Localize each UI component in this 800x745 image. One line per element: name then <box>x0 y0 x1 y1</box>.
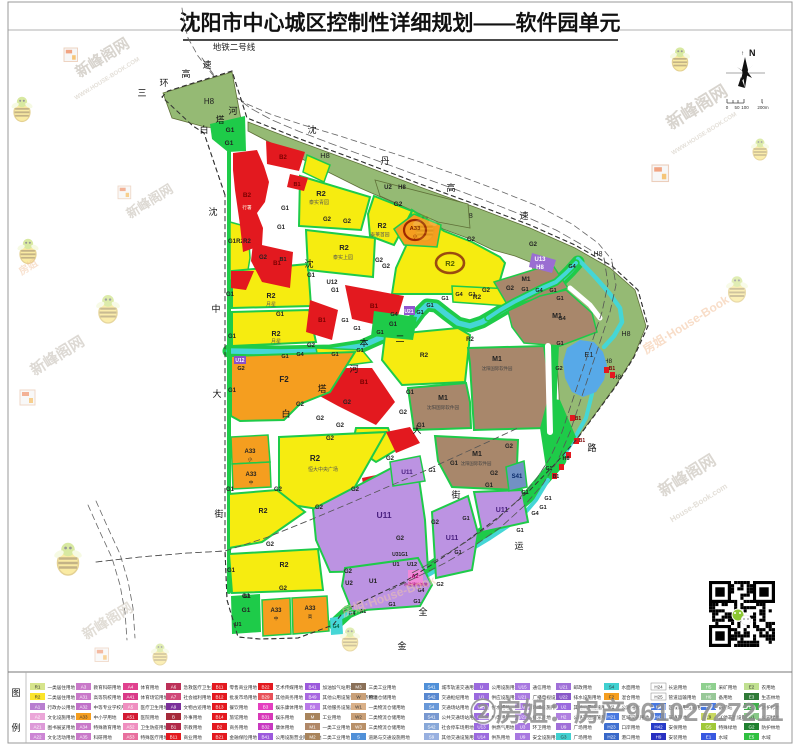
svg-text:U11: U11 <box>401 469 413 476</box>
svg-text:R2: R2 <box>243 239 251 245</box>
svg-text:A2: A2 <box>35 715 41 720</box>
svg-text:二类工业用地: 二类工业用地 <box>323 734 351 741</box>
svg-text:S41: S41 <box>512 474 523 480</box>
svg-text:G2: G2 <box>344 569 353 575</box>
svg-text:50: 50 <box>734 105 740 110</box>
svg-text:G1: G1 <box>441 296 448 302</box>
svg-text:100: 100 <box>741 105 749 110</box>
svg-text:E1: E1 <box>584 350 593 359</box>
svg-text:B2: B2 <box>279 155 287 161</box>
svg-text:B14: B14 <box>215 715 224 720</box>
svg-text:A4: A4 <box>128 685 134 690</box>
svg-text:G2: G2 <box>296 402 305 408</box>
svg-text:旅馆用地: 旅馆用地 <box>230 714 249 721</box>
svg-text:A1: A1 <box>35 705 41 710</box>
svg-text:W2: W2 <box>355 715 362 720</box>
svg-text:G1: G1 <box>546 466 553 472</box>
svg-text:G1: G1 <box>225 140 234 147</box>
svg-text:G1: G1 <box>516 528 523 534</box>
svg-text:A21: A21 <box>33 725 42 730</box>
svg-text:B49: B49 <box>308 695 317 700</box>
svg-text:S42: S42 <box>427 695 436 700</box>
svg-text:S42: S42 <box>427 725 436 730</box>
svg-text:R1: R1 <box>35 685 41 690</box>
svg-text:R2: R2 <box>466 337 474 343</box>
svg-text:U: U <box>480 685 483 690</box>
svg-text:B1: B1 <box>318 318 326 324</box>
svg-text:G2: G2 <box>351 487 360 493</box>
svg-text:体育用地: 体育用地 <box>141 684 160 691</box>
svg-text:文化活动用地: 文化活动用地 <box>48 734 76 741</box>
svg-text:R2: R2 <box>35 695 41 700</box>
svg-text:白: 白 <box>281 408 290 419</box>
svg-text:A7: A7 <box>171 695 177 700</box>
svg-text:M1: M1 <box>438 395 448 402</box>
svg-text:U1: U1 <box>369 578 378 585</box>
svg-text:G1: G1 <box>226 487 235 493</box>
svg-text:中: 中 <box>274 615 279 622</box>
svg-text:G2: G2 <box>259 255 268 261</box>
svg-text:G1: G1 <box>376 330 383 336</box>
svg-text:沈: 沈 <box>307 124 316 135</box>
svg-text:G1: G1 <box>428 468 435 474</box>
svg-text:G1: G1 <box>417 423 426 429</box>
svg-text:G2: G2 <box>326 436 335 442</box>
svg-text:其他商务用地: 其他商务用地 <box>276 694 304 701</box>
svg-text:恒大中央广场: 恒大中央广场 <box>308 466 338 473</box>
svg-text:卫生防疫用地: 卫生防疫用地 <box>141 724 169 731</box>
svg-text:特殊医疗用地: 特殊医疗用地 <box>141 734 169 741</box>
svg-text:H8: H8 <box>398 185 406 191</box>
svg-text:G2: G2 <box>506 286 515 292</box>
svg-text:水面用地: 水面用地 <box>622 684 641 691</box>
svg-text:S41: S41 <box>427 715 436 720</box>
svg-text:A5: A5 <box>128 705 134 710</box>
svg-text:G2: G2 <box>323 217 332 223</box>
svg-text:A3: A3 <box>81 685 87 690</box>
svg-text:G2: G2 <box>396 536 405 542</box>
svg-text:B21: B21 <box>215 735 224 740</box>
svg-text:大: 大 <box>212 388 221 399</box>
svg-text:E1: E1 <box>706 735 712 740</box>
svg-text:R2: R2 <box>267 293 276 300</box>
svg-text:泰实青园: 泰实青园 <box>309 199 329 206</box>
svg-text:G1: G1 <box>556 341 563 347</box>
svg-text:交通场站用地: 交通场站用地 <box>442 704 470 711</box>
svg-text:G1: G1 <box>454 550 461 556</box>
svg-text:G2: G2 <box>316 416 325 422</box>
svg-text:H8: H8 <box>622 331 631 338</box>
svg-text:沈阳市中心城区控制性详细规划——软件园单元: 沈阳市中心城区控制性详细规划——软件园单元 <box>180 11 621 35</box>
svg-text:U21: U21 <box>404 309 413 315</box>
svg-text:G1: G1 <box>544 496 551 502</box>
svg-text:港口用地: 港口用地 <box>622 734 641 741</box>
svg-text:长途用地: 长途用地 <box>669 684 688 691</box>
svg-text:S9: S9 <box>429 735 435 740</box>
svg-text:G1: G1 <box>331 352 338 358</box>
svg-text:M1: M1 <box>521 276 530 283</box>
svg-text:G1: G1 <box>485 483 494 489</box>
svg-text:科研用地: 科研用地 <box>94 734 113 741</box>
svg-text:R2: R2 <box>420 352 429 359</box>
svg-text:G3: G3 <box>560 735 567 740</box>
svg-text:U12: U12 <box>407 562 417 568</box>
svg-text:H5: H5 <box>706 685 712 690</box>
svg-text:A6: A6 <box>171 685 177 690</box>
svg-text:三类物流仓储用地: 三类物流仓储用地 <box>369 724 406 731</box>
svg-text:H8: H8 <box>594 251 603 258</box>
svg-text:B13: B13 <box>215 705 224 710</box>
svg-text:R2: R2 <box>378 223 387 230</box>
svg-text:G1: G1 <box>226 292 235 298</box>
svg-text:A33: A33 <box>244 449 256 455</box>
svg-text:泰莱首园: 泰莱首园 <box>370 231 389 238</box>
svg-text:水域: 水域 <box>719 734 729 740</box>
svg-text:G1: G1 <box>243 594 250 600</box>
svg-text:G1: G1 <box>549 288 556 294</box>
svg-text:体育场馆用地: 体育场馆用地 <box>141 694 169 701</box>
svg-text:艺术传媒用地: 艺术传媒用地 <box>276 684 304 691</box>
svg-text:沈: 沈 <box>304 258 313 269</box>
svg-text:U12: U12 <box>326 280 338 286</box>
svg-text:G2: G2 <box>266 542 275 548</box>
svg-text:B1: B1 <box>360 379 369 386</box>
svg-text:G2: G2 <box>386 456 395 462</box>
svg-text:M1: M1 <box>472 451 482 458</box>
svg-text:例: 例 <box>11 722 20 733</box>
svg-text:A33: A33 <box>245 472 257 478</box>
svg-text:一类居住用地: 一类居住用地 <box>48 684 76 691</box>
svg-text:医院用地: 医院用地 <box>141 714 160 721</box>
svg-text:水域: 水域 <box>762 734 772 740</box>
svg-text:R2: R2 <box>339 243 349 252</box>
svg-text:教育科研用地: 教育科研用地 <box>94 684 122 691</box>
svg-text:G2: G2 <box>307 343 316 349</box>
svg-text:道路与交通设施用地: 道路与交通设施用地 <box>369 734 411 741</box>
svg-text:S4: S4 <box>609 685 615 690</box>
svg-text:G1: G1 <box>539 505 546 511</box>
svg-text:行政办公用地: 行政办公用地 <box>48 704 76 711</box>
svg-text:G2: G2 <box>505 444 514 450</box>
svg-text:其他交通设施用地: 其他交通设施用地 <box>442 734 479 741</box>
svg-text:A33: A33 <box>270 608 282 614</box>
svg-text:文化设施用地: 文化设施用地 <box>48 714 76 721</box>
svg-text:中小学用地: 中小学用地 <box>94 714 117 721</box>
svg-text:G1: G1 <box>277 225 286 231</box>
svg-text:沈阳国际软件园: 沈阳国际软件园 <box>482 365 513 372</box>
svg-text:H8: H8 <box>204 97 215 106</box>
svg-text:G1: G1 <box>450 461 459 467</box>
svg-text:G4: G4 <box>568 264 576 270</box>
svg-text:特殊教育用地: 特殊教育用地 <box>94 724 122 731</box>
svg-text:G2: G2 <box>482 288 491 294</box>
svg-text:加油加气站用地: 加油加气站用地 <box>323 684 356 691</box>
svg-text:W1: W1 <box>355 705 362 710</box>
svg-text:G1: G1 <box>276 312 285 318</box>
svg-text:塔: 塔 <box>215 114 224 125</box>
svg-text:安装用地: 安装用地 <box>669 734 688 741</box>
svg-text:B1: B1 <box>579 438 586 444</box>
svg-text:U9: U9 <box>520 735 526 740</box>
svg-text:二: 二 <box>395 334 404 344</box>
svg-text:M3: M3 <box>355 685 362 690</box>
svg-text:G1: G1 <box>331 288 340 294</box>
svg-text:G1: G1 <box>356 348 363 354</box>
svg-text:G4: G4 <box>390 312 398 318</box>
svg-text:G2: G2 <box>382 264 391 270</box>
svg-text:G2: G2 <box>436 582 443 588</box>
svg-text:商业用地: 商业用地 <box>184 734 203 741</box>
svg-text:A33: A33 <box>304 606 316 612</box>
svg-text:R2: R2 <box>316 189 326 198</box>
svg-text:交通枢纽用地: 交通枢纽用地 <box>442 694 470 701</box>
svg-text:康体用地: 康体用地 <box>276 724 295 731</box>
svg-text:餐饮用地: 餐饮用地 <box>230 704 249 711</box>
svg-text:图: 图 <box>11 688 20 698</box>
svg-text:地铁二号线: 地铁二号线 <box>213 42 256 52</box>
svg-text:一类物流仓储用地: 一类物流仓储用地 <box>369 704 406 711</box>
svg-text:R2: R2 <box>445 259 455 268</box>
svg-text:A51: A51 <box>126 715 135 720</box>
svg-text:H8: H8 <box>320 151 330 160</box>
svg-text:月星: 月星 <box>271 339 281 345</box>
svg-text:H8: H8 <box>562 456 569 462</box>
svg-text:高: 高 <box>181 68 190 79</box>
svg-text:U13: U13 <box>534 257 546 263</box>
svg-text:A53: A53 <box>126 735 135 740</box>
svg-text:H24: H24 <box>654 685 663 690</box>
svg-text:B1: B1 <box>575 416 582 422</box>
svg-text:三: 三 <box>137 88 146 98</box>
svg-text:文物古迹用地: 文物古迹用地 <box>184 704 212 711</box>
svg-text:河: 河 <box>228 105 237 116</box>
svg-text:R2: R2 <box>310 454 321 463</box>
svg-text:广场用地: 广场用地 <box>574 734 593 741</box>
svg-text:娱乐用地: 娱乐用地 <box>276 714 295 721</box>
svg-text:U2: U2 <box>345 581 353 587</box>
svg-text:图书展览用地: 图书展览用地 <box>48 724 76 731</box>
svg-text:U1: U1 <box>392 562 399 568</box>
svg-text:G2: G2 <box>490 471 499 477</box>
svg-text:B1: B1 <box>609 366 616 372</box>
svg-text:G1: G1 <box>341 318 348 324</box>
svg-text:②房姐：房产96102727211: ②房姐：房产96102727211 <box>470 697 784 727</box>
svg-text:G4: G4 <box>535 288 543 294</box>
svg-text:金: 金 <box>397 640 406 651</box>
svg-text:G1: G1 <box>226 127 235 134</box>
svg-text:A52: A52 <box>126 725 135 730</box>
svg-text:娱乐康体用地: 娱乐康体用地 <box>276 704 304 711</box>
svg-text:U11: U11 <box>446 535 459 542</box>
svg-text:G2: G2 <box>315 505 324 511</box>
svg-text:中: 中 <box>249 479 254 486</box>
svg-text:G1: G1 <box>521 287 528 293</box>
svg-text:三类工业用地: 三类工业用地 <box>369 684 397 691</box>
svg-text:A31: A31 <box>79 695 88 700</box>
svg-text:二类居住用地: 二类居住用地 <box>48 694 76 701</box>
svg-text:物流仓储用地: 物流仓储用地 <box>369 694 397 701</box>
svg-text:G1: G1 <box>556 296 563 302</box>
svg-text:G4: G4 <box>296 352 304 358</box>
svg-text:采矿用地: 采矿用地 <box>719 684 738 691</box>
svg-text:零售商业用地: 零售商业用地 <box>230 684 258 691</box>
svg-text:G4: G4 <box>455 292 463 298</box>
svg-text:G2: G2 <box>399 410 408 416</box>
svg-text:S41: S41 <box>427 685 436 690</box>
svg-text:沈阳国际软件园: 沈阳国际软件园 <box>427 404 460 411</box>
svg-text:批发市场用地: 批发市场用地 <box>230 694 258 701</box>
svg-text:R2: R2 <box>280 562 289 569</box>
svg-text:B1: B1 <box>553 474 560 480</box>
svg-text:S4: S4 <box>429 705 435 710</box>
svg-text:泰实上园: 泰实上园 <box>333 254 353 261</box>
svg-text:G2: G2 <box>394 201 403 208</box>
svg-text:G2: G2 <box>279 586 288 592</box>
svg-text:B11: B11 <box>170 735 178 740</box>
svg-text:M: M <box>311 715 315 720</box>
svg-text:G4: G4 <box>531 511 539 517</box>
svg-text:G1: G1 <box>307 273 316 279</box>
svg-text:街: 街 <box>214 508 223 519</box>
svg-text:塔: 塔 <box>317 383 326 394</box>
svg-text:B22: B22 <box>261 685 270 690</box>
svg-text:B11: B11 <box>216 685 224 690</box>
svg-text:B31: B31 <box>261 715 270 720</box>
svg-text:U11: U11 <box>376 510 391 520</box>
svg-text:G2: G2 <box>467 237 476 243</box>
svg-text:G1: G1 <box>281 354 288 360</box>
svg-text:高等院校用地: 高等院校用地 <box>94 694 122 701</box>
svg-text:B1: B1 <box>279 257 286 263</box>
svg-text:宗教用地: 宗教用地 <box>184 724 203 731</box>
svg-text:U15: U15 <box>518 685 527 690</box>
svg-text:运: 运 <box>514 541 523 551</box>
svg-text:G1: G1 <box>413 599 420 605</box>
svg-text:路: 路 <box>587 442 596 453</box>
svg-text:G1: G1 <box>242 607 251 614</box>
svg-text:B2: B2 <box>243 192 252 199</box>
svg-text:城市轨道交通用地: 城市轨道交通用地 <box>442 684 479 691</box>
svg-text:二类物流仓储用地: 二类物流仓储用地 <box>369 714 406 721</box>
svg-text:A34: A34 <box>79 725 88 730</box>
svg-text:G2: G2 <box>343 400 352 406</box>
svg-text:U31G1: U31G1 <box>392 552 408 558</box>
svg-text:通信用地: 通信用地 <box>533 684 552 691</box>
svg-text:小: 小 <box>248 456 253 463</box>
svg-text:A35: A35 <box>79 735 88 740</box>
svg-text:↑: ↑ <box>741 51 744 57</box>
svg-text:社会福利用地: 社会福利用地 <box>184 694 212 701</box>
svg-text:邮政用地: 邮政用地 <box>574 684 593 691</box>
svg-text:G1: G1 <box>462 516 469 522</box>
svg-text:本: 本 <box>359 337 368 348</box>
svg-text:B1: B1 <box>293 182 300 188</box>
svg-text:行署: 行署 <box>242 204 252 211</box>
svg-text:W3: W3 <box>355 725 362 730</box>
svg-text:丹: 丹 <box>380 156 389 166</box>
svg-text:S: S <box>357 735 360 740</box>
svg-text:M1: M1 <box>309 725 316 730</box>
svg-text:G1: G1 <box>416 310 423 316</box>
svg-text:G1: G1 <box>281 206 290 212</box>
svg-text:G1: G1 <box>468 292 475 298</box>
svg-text:G1: G1 <box>521 490 528 496</box>
svg-text:B3: B3 <box>263 705 269 710</box>
svg-text:速: 速 <box>519 211 528 221</box>
svg-text:B29: B29 <box>261 695 270 700</box>
svg-text:街: 街 <box>451 489 460 500</box>
svg-text:G2: G2 <box>343 219 352 225</box>
svg-text:全: 全 <box>418 606 427 617</box>
svg-text:A22: A22 <box>33 735 42 740</box>
svg-text:B41: B41 <box>308 685 317 690</box>
svg-text:A9: A9 <box>171 705 177 710</box>
svg-text:B41: B41 <box>261 735 270 740</box>
svg-text:农用地: 农用地 <box>762 684 776 691</box>
svg-text:金融保险用地: 金融保险用地 <box>230 734 258 741</box>
svg-text:G2: G2 <box>555 366 562 372</box>
svg-text:G2: G2 <box>529 242 538 248</box>
svg-text:G2: G2 <box>237 366 244 372</box>
svg-text:G1: G1 <box>353 326 360 332</box>
svg-text:B1: B1 <box>370 303 379 310</box>
svg-text:B12: B12 <box>215 695 224 700</box>
svg-text:R2: R2 <box>272 331 281 338</box>
svg-text:F2: F2 <box>279 375 289 384</box>
svg-text:外事用地: 外事用地 <box>184 714 203 721</box>
svg-text:沈阳国际软件园: 沈阳国际软件园 <box>461 460 492 467</box>
svg-text:U14: U14 <box>477 735 486 740</box>
svg-text:G4: G4 <box>558 316 566 322</box>
svg-text:U12: U12 <box>235 358 244 364</box>
svg-text:B32: B32 <box>261 725 270 730</box>
svg-text:高: 高 <box>308 613 313 620</box>
svg-text:B: B <box>172 715 175 720</box>
svg-text:商务用地: 商务用地 <box>230 724 249 731</box>
svg-text:沈: 沈 <box>208 206 217 217</box>
svg-text:G2: G2 <box>431 520 440 526</box>
svg-text:M2: M2 <box>309 735 316 740</box>
svg-text:G2: G2 <box>336 423 345 429</box>
svg-text:H22: H22 <box>607 735 616 740</box>
svg-text:中: 中 <box>211 303 220 314</box>
svg-text:白: 白 <box>199 124 208 135</box>
svg-text:A33: A33 <box>79 715 88 720</box>
svg-text:一类工业用地: 一类工业用地 <box>323 724 351 731</box>
svg-text:医疗卫生用地: 医疗卫生用地 <box>141 704 169 711</box>
svg-text:供热用地: 供热用地 <box>492 734 511 741</box>
svg-text:G1: G1 <box>426 303 433 309</box>
svg-text:E2: E2 <box>749 685 755 690</box>
svg-text:U2: U2 <box>384 185 392 191</box>
svg-text:H9: H9 <box>656 735 662 740</box>
svg-text:A41: A41 <box>126 695 135 700</box>
svg-text:G1: G1 <box>389 322 398 328</box>
svg-text:G1: G1 <box>227 568 236 574</box>
svg-text:月星: 月星 <box>266 302 276 308</box>
svg-text:B2: B2 <box>217 725 223 730</box>
svg-text:R2: R2 <box>259 508 268 515</box>
svg-text:M1: M1 <box>492 356 502 363</box>
svg-text:E5: E5 <box>749 735 755 740</box>
svg-text:H8: H8 <box>536 265 544 271</box>
svg-text:G1: G1 <box>228 334 237 340</box>
svg-text:G1: G1 <box>228 388 237 394</box>
svg-text:G1: G1 <box>228 239 237 245</box>
svg-text:200m: 200m <box>757 105 769 110</box>
svg-text:N: N <box>749 48 756 58</box>
svg-text:速: 速 <box>202 60 211 70</box>
